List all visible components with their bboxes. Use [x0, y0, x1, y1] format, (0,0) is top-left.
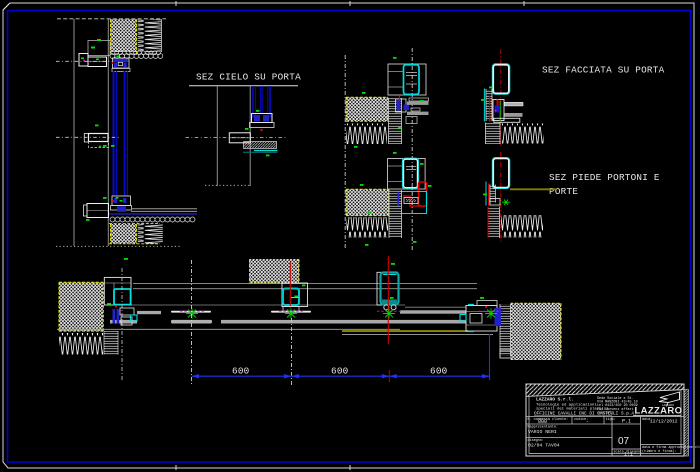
- svg-text:VARIO NERI: VARIO NERI: [528, 429, 557, 435]
- svg-text:07: 07: [618, 436, 630, 447]
- svg-text:tipo:: tipo:: [606, 417, 616, 422]
- svg-text:N. commessa cliente:: N. commessa cliente:: [528, 417, 569, 422]
- svg-text:SEZ FACCIATA SU PORTA: SEZ FACCIATA SU PORTA: [542, 65, 665, 76]
- svg-text:Rappresentante:: Rappresentante:: [528, 425, 559, 430]
- svg-text:02/04 TAV04: 02/04 TAV04: [528, 443, 560, 449]
- svg-text:12/12/2012: 12/12/2012: [650, 419, 678, 425]
- svg-text:600: 600: [331, 366, 349, 377]
- svg-text:PORTE: PORTE: [549, 186, 578, 197]
- svg-text:600: 600: [232, 366, 250, 377]
- svg-text:SEZ PIEDE PORTONI E: SEZ PIEDE PORTONI E: [549, 172, 660, 183]
- svg-text:LAZZARO: LAZZARO: [635, 406, 683, 417]
- svg-text:(timbro e firma):: (timbro e firma):: [642, 449, 677, 454]
- svg-text:-: -: [586, 419, 589, 425]
- svg-text:1:1: 1:1: [624, 452, 633, 458]
- svg-text:P.1: P.1: [622, 419, 631, 425]
- svg-text:600: 600: [430, 366, 448, 377]
- svg-text:disegno:: disegno:: [528, 438, 544, 443]
- svg-text:LAZZARO S.r.l.: LAZZARO S.r.l.: [536, 397, 574, 403]
- svg-text:speciali: speciali: [597, 410, 613, 415]
- svg-text:000: 000: [538, 419, 547, 425]
- svg-text:SEZ CIELO SU PORTA: SEZ CIELO SU PORTA: [196, 72, 301, 83]
